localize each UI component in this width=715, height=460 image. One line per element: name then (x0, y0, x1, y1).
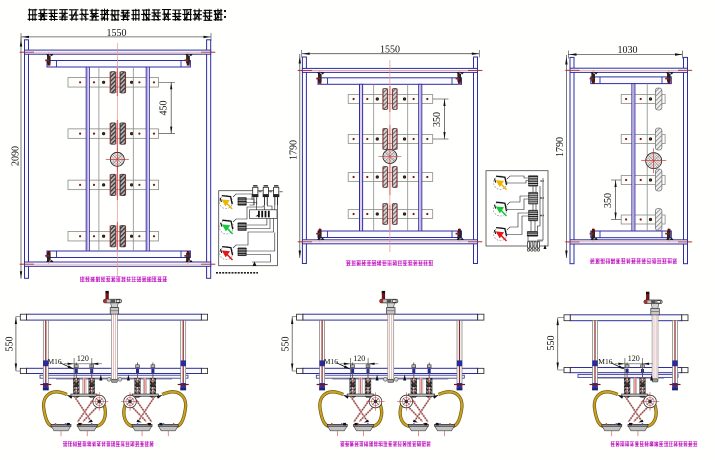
svg-text:1790: 1790 (288, 140, 299, 160)
svg-text:2090: 2090 (11, 146, 22, 166)
svg-text:1030: 1030 (618, 45, 638, 56)
svg-text:450: 450 (159, 101, 170, 116)
svg-text:1790: 1790 (555, 137, 566, 157)
svg-text:350: 350 (603, 193, 614, 208)
svg-text:1550: 1550 (107, 28, 127, 39)
svg-text:350: 350 (432, 112, 443, 127)
svg-text:1550: 1550 (380, 45, 400, 56)
svg-text:550: 550 (546, 336, 557, 351)
